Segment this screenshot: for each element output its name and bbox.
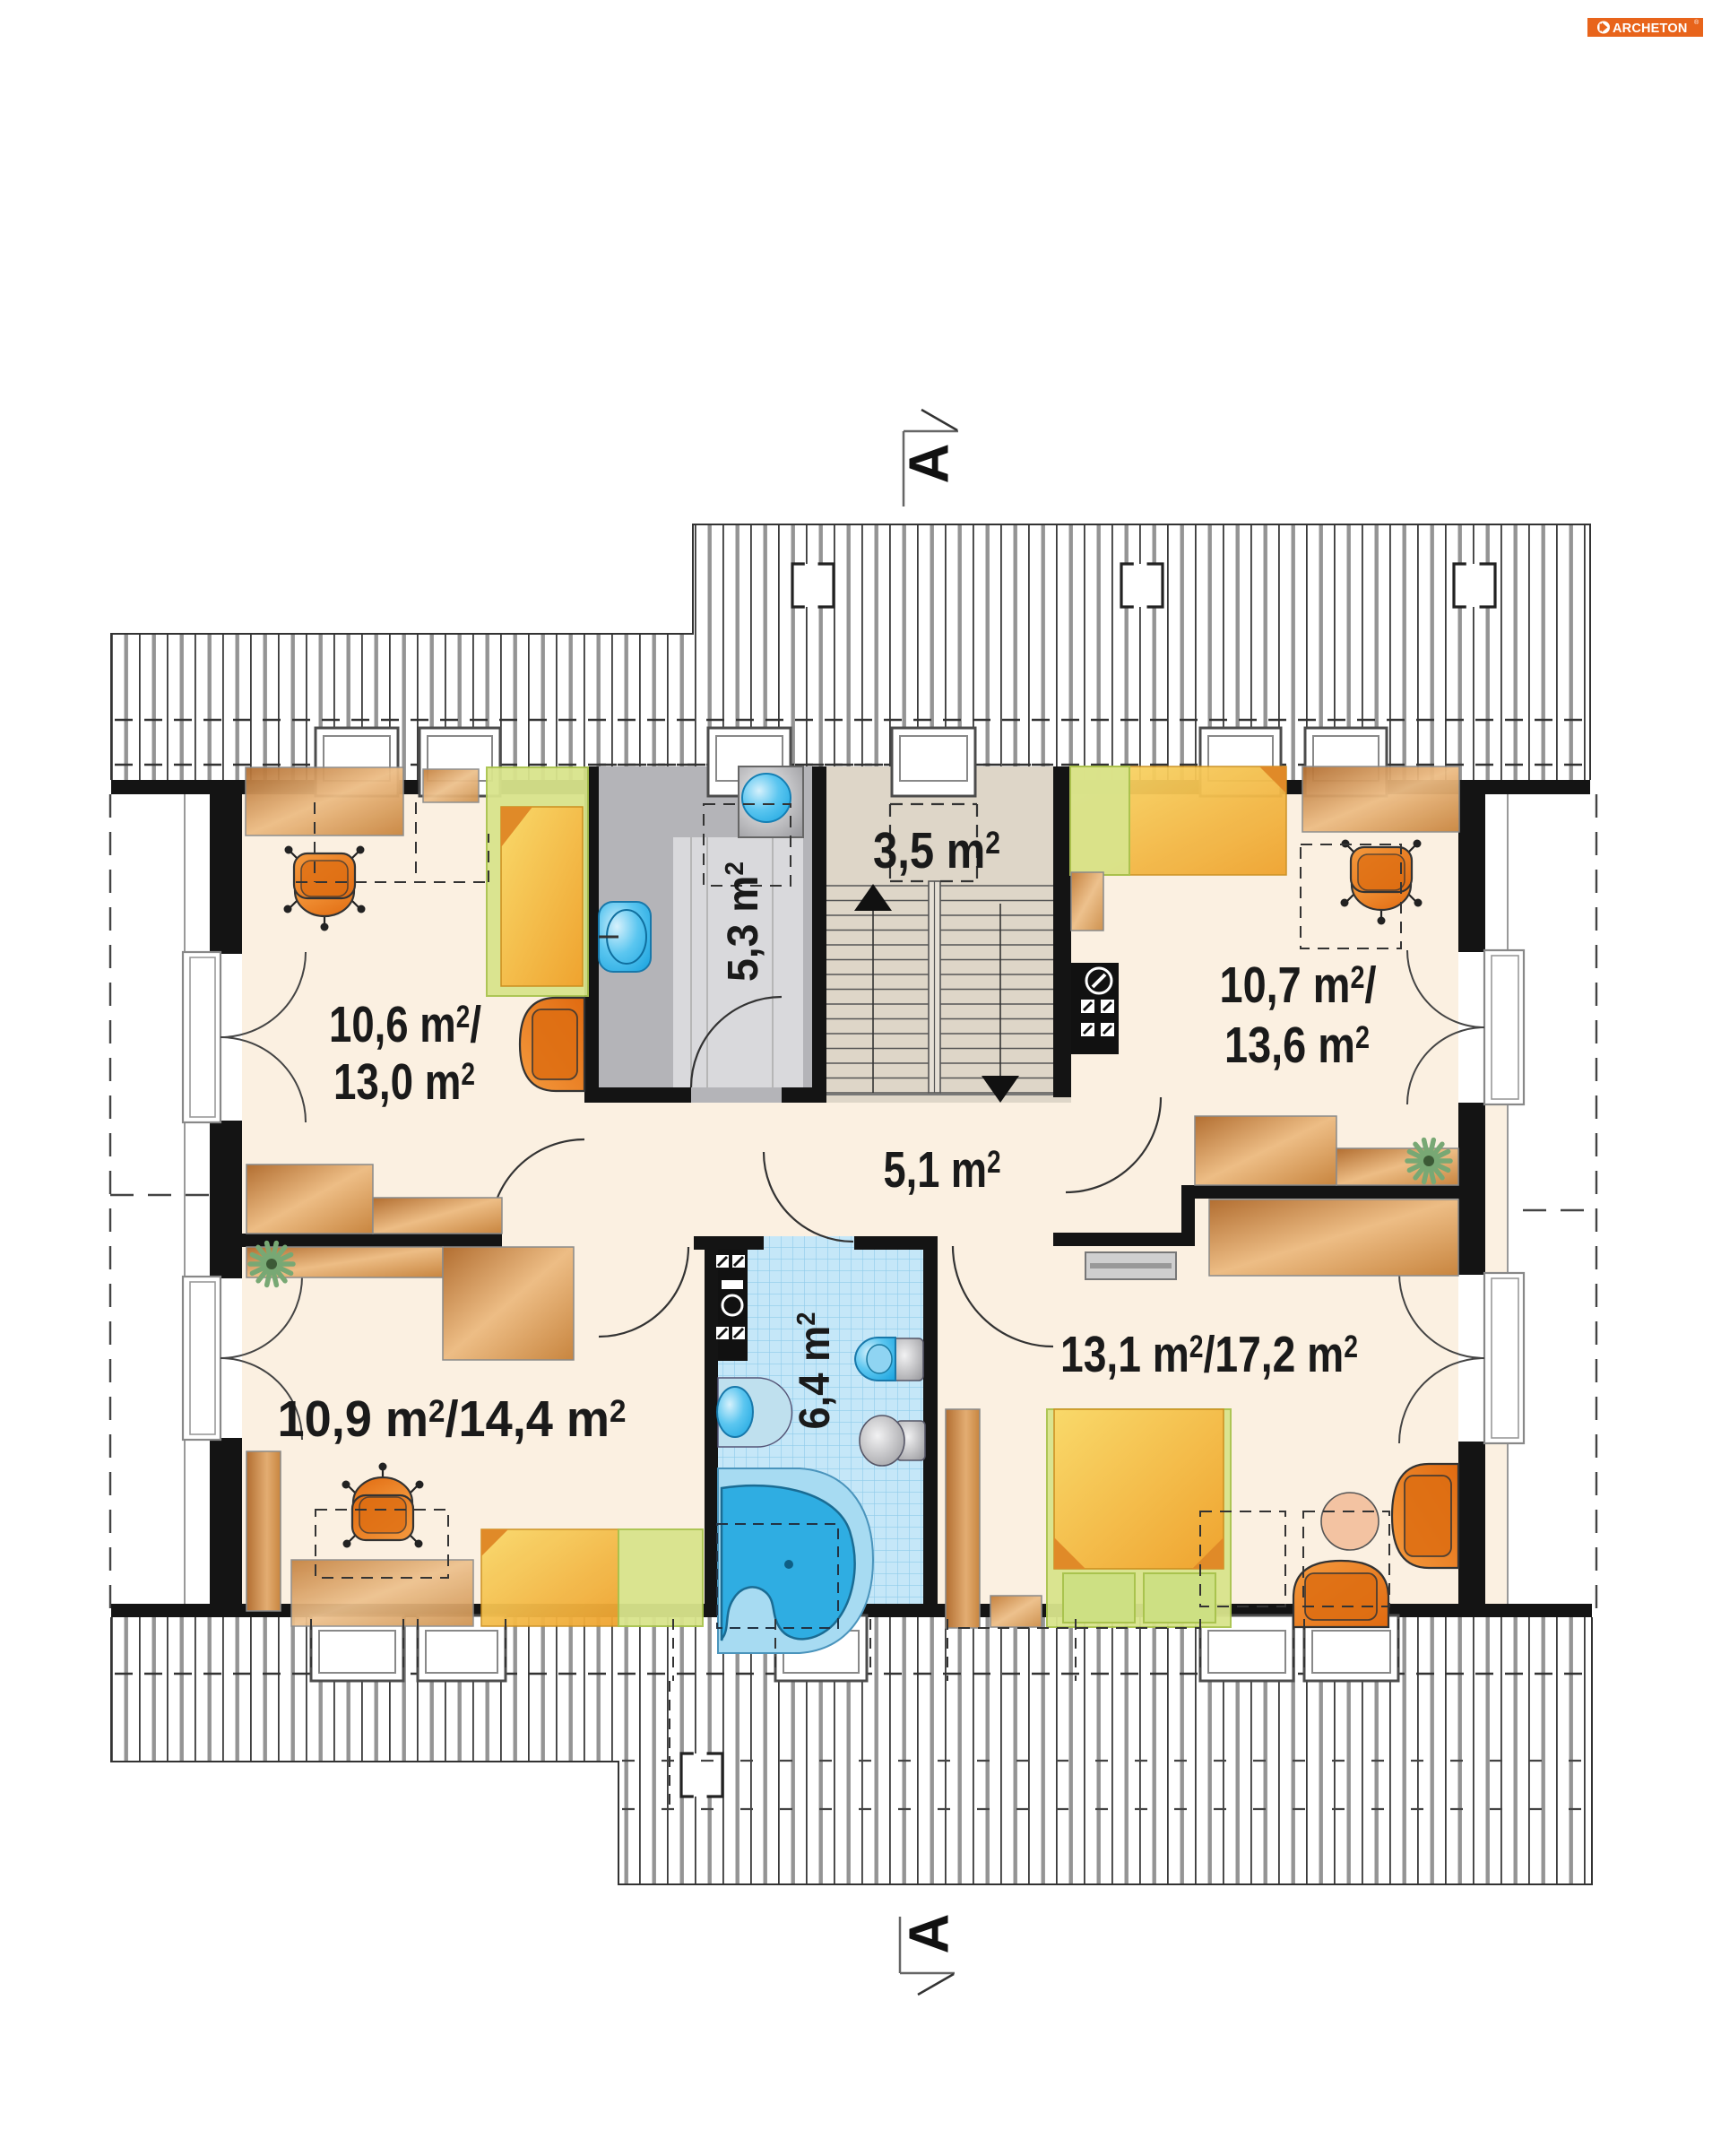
svg-text:6,4 m2​: 6,4 m2​ xyxy=(791,1312,839,1430)
svg-text:13,0 m2​: 13,0 m2​ xyxy=(333,1053,475,1111)
svg-text:10,9 m2​/14,4 m2​: 10,9 m2​/14,4 m2​ xyxy=(278,1390,627,1448)
svg-text:5,3 m2​: 5,3 m2​ xyxy=(720,862,767,982)
svg-text:13,6 m2​: 13,6 m2​ xyxy=(1224,1017,1370,1074)
svg-text:A: A xyxy=(898,1914,960,1954)
svg-text:5,1 m2​: 5,1 m2​ xyxy=(884,1141,1001,1199)
svg-text:ARCHETON: ARCHETON xyxy=(1613,22,1688,36)
svg-text:13,1 m2​/17,2 m2​: 13,1 m2​/17,2 m2​ xyxy=(1060,1326,1358,1383)
svg-text:A: A xyxy=(898,444,960,484)
svg-text:3,5 m2​: 3,5 m2​ xyxy=(873,822,1000,879)
svg-text:®: ® xyxy=(1694,19,1699,26)
